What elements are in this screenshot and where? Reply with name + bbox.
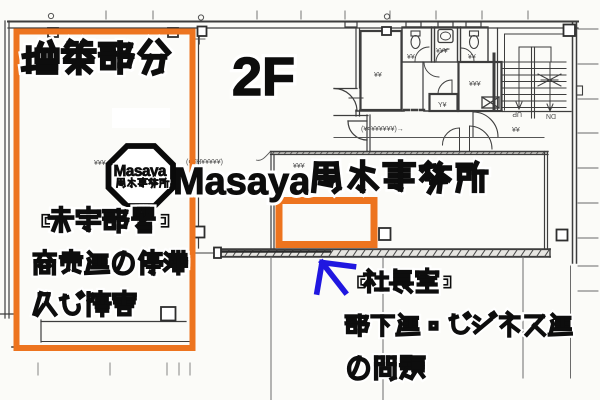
svg-text:(¥¤¥¥¥¥¥¥)→: (¥¤¥¥¥¥¥¥)→ bbox=[361, 126, 404, 133]
svg-text:¥¥: ¥¥ bbox=[407, 54, 415, 61]
svg-text:2F: 2F bbox=[232, 47, 295, 107]
svg-text:DN: DN bbox=[546, 112, 556, 119]
svg-text:¥¥¥: ¥¥¥ bbox=[436, 48, 448, 55]
svg-text:¥¥: ¥¥ bbox=[512, 127, 520, 134]
svg-text:Y¥: Y¥ bbox=[438, 102, 447, 109]
svg-text:Masaya: Masaya bbox=[173, 161, 311, 203]
svg-text:¥¥: ¥¥ bbox=[374, 72, 382, 79]
svg-text:¥¥¥: ¥¥¥ bbox=[469, 81, 481, 88]
svg-text:¥¥: ¥¥ bbox=[468, 54, 476, 61]
svg-text:¥¥¥: ¥¥¥ bbox=[94, 160, 106, 167]
svg-text:UP: UP bbox=[512, 110, 522, 117]
